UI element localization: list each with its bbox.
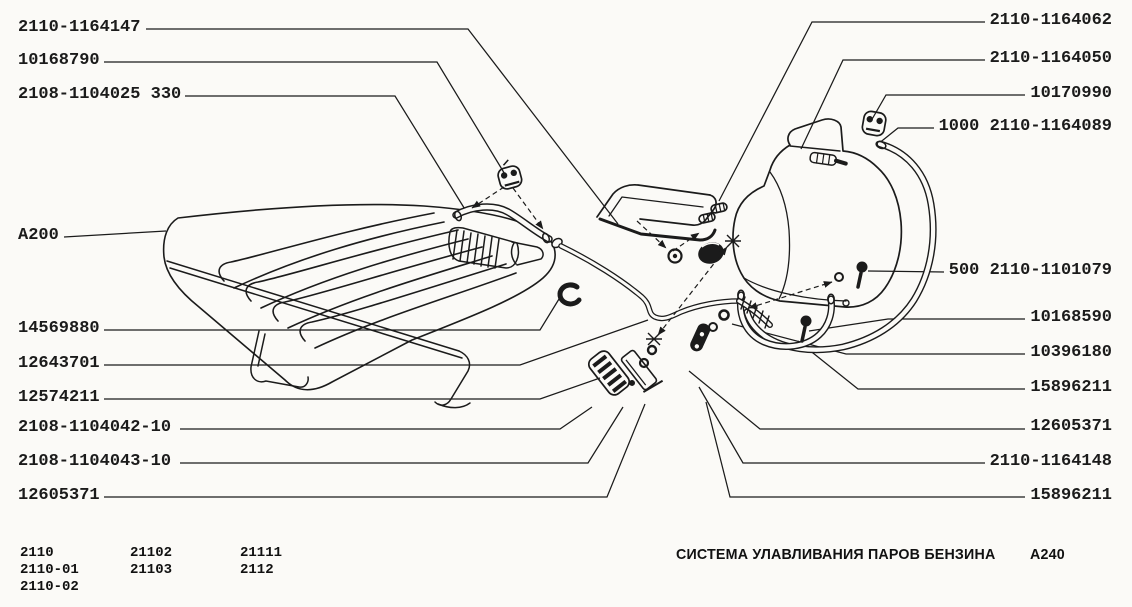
part-label-2108-1104025: 2108-1104025 330 — [18, 85, 181, 104]
canister-clamp — [861, 110, 887, 136]
strap-pad — [586, 346, 636, 400]
fuel-tank — [164, 205, 556, 390]
sheet-code: A240 — [1030, 546, 1065, 563]
mounting-bracket — [597, 185, 728, 240]
c-clip-holder — [560, 285, 579, 304]
part-label-12574211: 12574211 — [18, 388, 100, 407]
part-label-2110-1164147: 2110-1164147 — [18, 18, 140, 37]
model-code: 21103 — [130, 562, 172, 578]
part-label-15896211-a: 15896211 — [1030, 378, 1112, 397]
part-label-2110-1101079: 500 2110-1101079 — [949, 261, 1112, 280]
part-label-2110-1164062: 2110-1164062 — [990, 11, 1112, 30]
part-label-10170990: 10170990 — [1030, 84, 1112, 103]
part-label-12605371-right: 12605371 — [1030, 417, 1112, 436]
vapor-separator-canister — [733, 119, 901, 307]
part-label-12605371-left: 12605371 — [18, 486, 100, 505]
part-label-a200-tank: A200 — [18, 226, 59, 245]
parts-diagram-page: 2110-1164147 10168790 2108-1104025 330 A… — [0, 0, 1132, 607]
part-label-10168590: 10168590 — [1030, 308, 1112, 327]
part-label-2110-1164089: 1000 2110-1164089 — [939, 117, 1112, 136]
part-label-2110-1164050: 2110-1164050 — [990, 49, 1112, 68]
sheet-title: СИСТЕМА УЛАВЛИВАНИЯ ПАРОВ БЕНЗИНА — [676, 546, 995, 563]
model-code: 21102 — [130, 545, 172, 561]
model-code: 2110-02 — [20, 579, 79, 595]
part-label-2108-1104042-10: 2108-1104042-10 — [18, 418, 171, 437]
model-code: 2112 — [240, 562, 274, 578]
vent-hose-1000 — [747, 140, 933, 349]
part-label-12643701: 12643701 — [18, 354, 100, 373]
hose-clamp-small — [495, 158, 523, 191]
model-code: 21111 — [240, 545, 282, 561]
model-code: 2110 — [20, 545, 54, 561]
part-label-10396180: 10396180 — [1030, 343, 1112, 362]
model-code: 2110-01 — [20, 562, 79, 578]
leader-lines — [64, 22, 1025, 497]
part-label-2110-1164148: 2110-1164148 — [990, 452, 1112, 471]
filler-neck — [449, 228, 543, 268]
part-label-15896211-b: 15896211 — [1030, 486, 1112, 505]
part-label-2108-1104043-10: 2108-1104043-10 — [18, 452, 171, 471]
star-marks — [646, 235, 741, 345]
double-pipe-clamp — [689, 321, 712, 353]
grommet — [669, 250, 682, 263]
part-label-10168790: 10168790 — [18, 51, 100, 70]
part-label-14569880: 14569880 — [18, 319, 100, 338]
